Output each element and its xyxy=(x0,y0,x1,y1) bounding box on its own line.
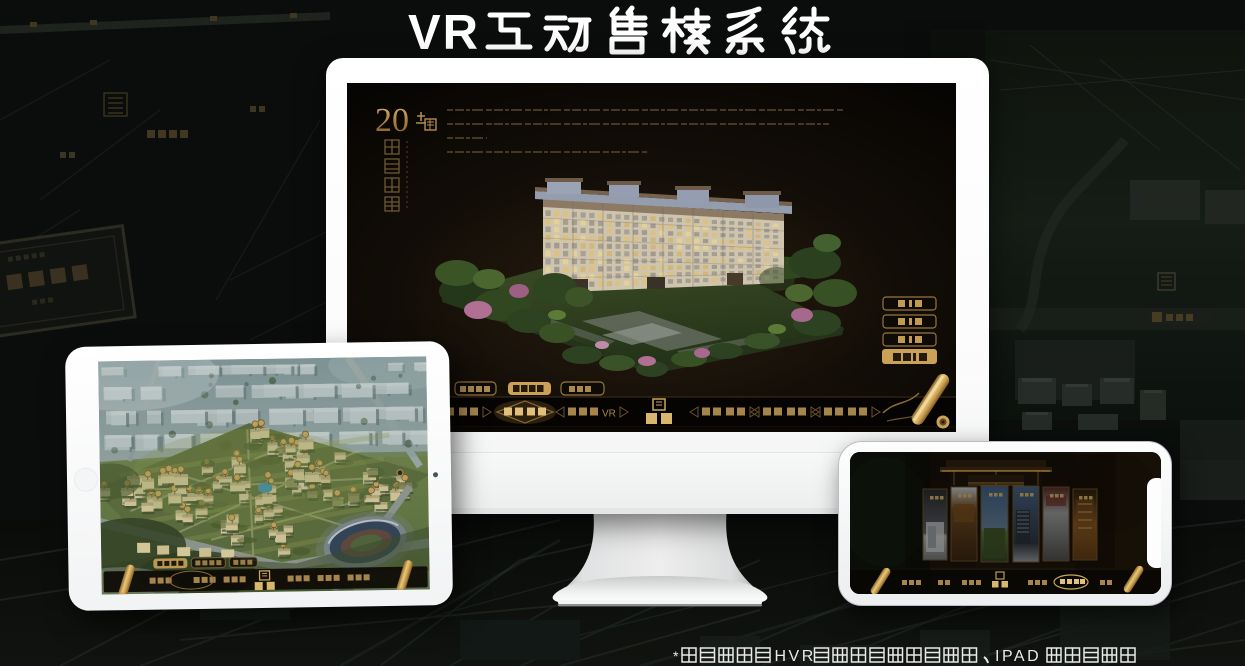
svg-text:VR: VR xyxy=(408,6,480,57)
svg-text:*: * xyxy=(673,648,681,664)
svg-text:IPAD: IPAD xyxy=(995,648,1041,665)
svg-text:VR: VR xyxy=(602,409,616,420)
svg-text:20: 20 xyxy=(375,102,409,139)
svg-text:HVR: HVR xyxy=(775,648,816,665)
